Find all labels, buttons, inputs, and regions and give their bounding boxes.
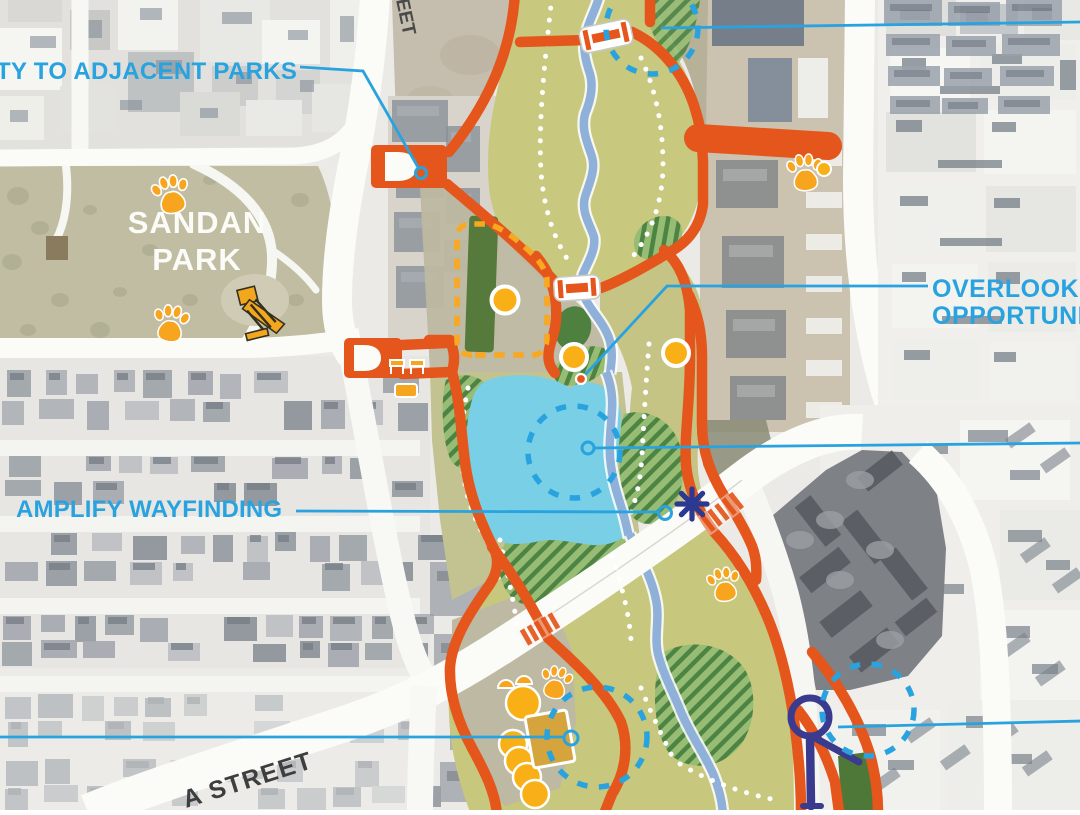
- svg-text:OVERLOOK: OVERLOOK: [932, 275, 1079, 303]
- svg-text:SANDAN: SANDAN: [128, 205, 267, 240]
- svg-text:OPPORTUNITY: OPPORTUNITY: [932, 302, 1080, 330]
- svg-text:TY TO ADJACENT PARKS: TY TO ADJACENT PARKS: [0, 58, 297, 85]
- svg-text:AMPLIFY WAYFINDING: AMPLIFY WAYFINDING: [16, 496, 282, 523]
- svg-text:PARK: PARK: [152, 242, 242, 277]
